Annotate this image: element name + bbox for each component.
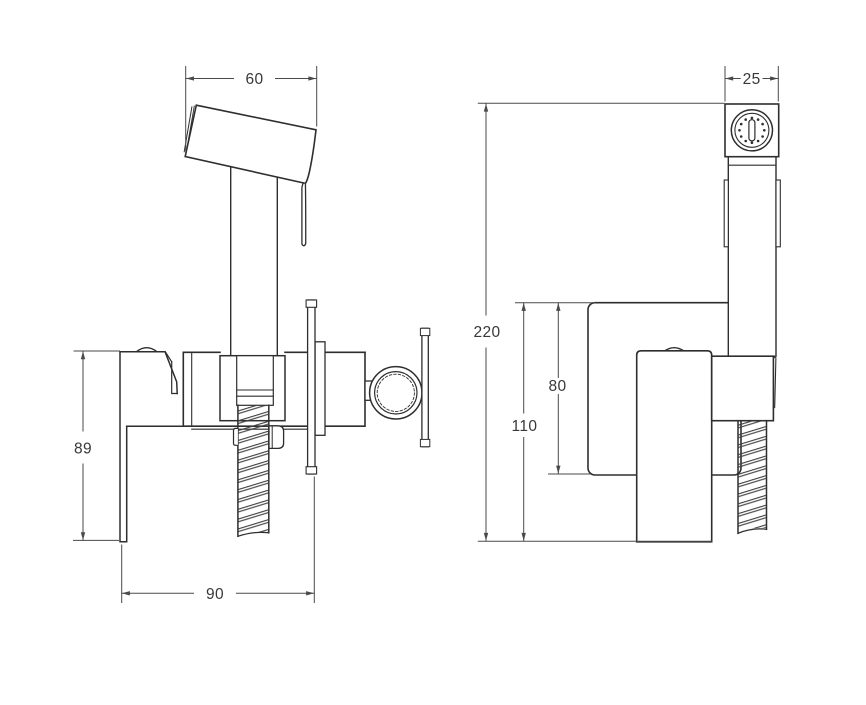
- arrow-left: [186, 76, 194, 80]
- spray-head: [184, 105, 316, 246]
- arrow-left: [725, 76, 733, 80]
- arrow-down: [556, 466, 560, 474]
- arrow-down: [484, 533, 488, 541]
- flange-plate-edge: [420, 328, 429, 446]
- hose-nut: [269, 426, 284, 449]
- dim-label-110: 110: [512, 418, 538, 435]
- hose-bracket: [712, 356, 776, 421]
- hose-tab: [234, 428, 238, 445]
- mounting-flange-ring: [370, 367, 422, 419]
- dim-label-80: 80: [548, 378, 566, 395]
- control-lever: [120, 348, 183, 542]
- lever-side: [637, 348, 712, 542]
- spray-slot: [749, 120, 755, 141]
- handle-body: [728, 157, 776, 357]
- plate-edge-top-cap: [306, 300, 317, 307]
- drawing-canvas: 60 89 90: [0, 0, 866, 705]
- arrow-up: [556, 303, 560, 311]
- shower-hose-front: [234, 405, 284, 536]
- lever-dome: [137, 348, 157, 352]
- dim-body-width: 90: [122, 477, 315, 603]
- spray-nozzle-tail: [302, 183, 306, 246]
- shower-hose-side: [738, 421, 767, 534]
- arrow-right: [770, 76, 778, 80]
- dim-label-25: 25: [743, 71, 761, 88]
- handle-stem: [231, 167, 278, 357]
- handle-rail-left: [724, 180, 728, 247]
- front-view: 60 89 90: [74, 67, 430, 603]
- arrow-right: [308, 76, 316, 80]
- arrow-down: [81, 532, 85, 540]
- dim-label-220: 220: [473, 324, 500, 341]
- arrow-down: [522, 533, 526, 541]
- dim-head-depth: 25: [725, 67, 778, 102]
- plate-edge-bottom-cap: [306, 467, 317, 474]
- side-view: 25 220 110 80: [473, 67, 780, 542]
- arrow-up: [81, 351, 85, 359]
- dim-label-89: 89: [74, 440, 92, 457]
- flange-plate-bottom-cap: [420, 439, 429, 446]
- wall-plate-edge: [306, 300, 317, 474]
- flange-plate-top-cap: [420, 328, 429, 335]
- dim-lever-drop: 89: [74, 351, 120, 540]
- dim-label-60: 60: [245, 71, 263, 88]
- hose-connector: [237, 356, 274, 406]
- handle-rail-right: [776, 180, 780, 247]
- body-collar: [315, 342, 325, 436]
- arrow-up: [522, 303, 526, 311]
- dim-plate-height: 80: [548, 303, 590, 474]
- arrow-up: [484, 104, 488, 112]
- arrow-right: [306, 591, 314, 595]
- dim-label-90: 90: [206, 586, 224, 603]
- arrow-left: [122, 591, 130, 595]
- dim-plate-to-bottom: 110: [512, 303, 595, 541]
- technical-drawing: 60 89 90: [0, 0, 866, 705]
